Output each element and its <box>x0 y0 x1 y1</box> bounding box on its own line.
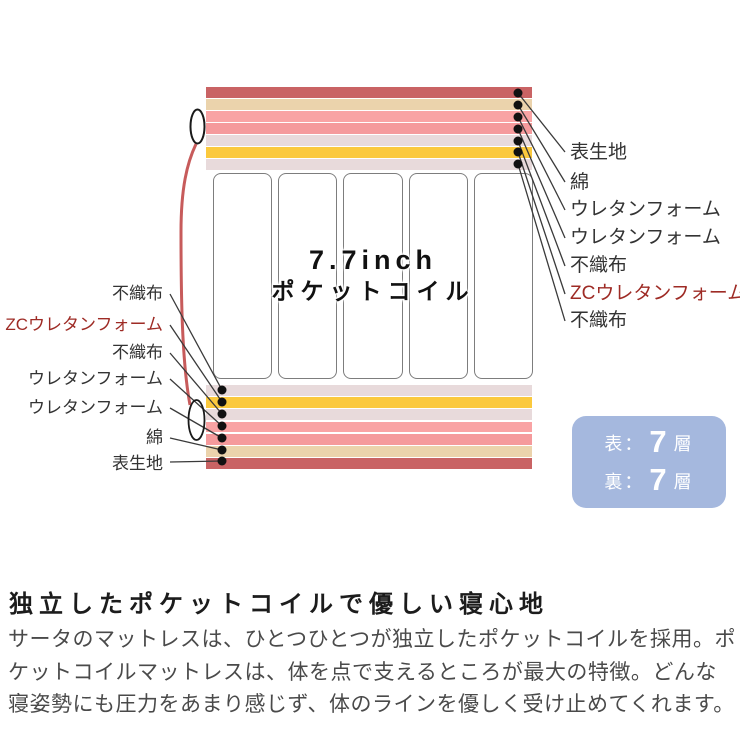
badge-back-row: 裏：7層 <box>604 462 693 500</box>
layer-bottom-surface-fabric <box>206 458 532 469</box>
layer-top-nonwoven-2 <box>206 159 532 170</box>
label-right-nonwoven-1: 不織布 <box>570 255 627 277</box>
coil-height-text: 7.7inch <box>213 246 533 276</box>
label-left-nonwoven-2: 不織布 <box>112 342 163 364</box>
layer-top-urethane-2 <box>206 123 532 134</box>
layer-bottom-nonwoven-2 <box>206 409 532 420</box>
mattress-top-layer-stack <box>206 87 532 170</box>
layer-bottom-urethane-2 <box>206 434 532 445</box>
label-left-urethane-2: ウレタンフォーム <box>28 397 163 419</box>
label-left-surface-fabric: 表生地 <box>112 453 163 475</box>
badge-front-value: 7 <box>649 424 666 460</box>
layer-top-nonwoven-1 <box>206 135 532 146</box>
badge-front-label: 表： <box>604 430 644 456</box>
section-heading: 独立したポケットコイルで優しい寝心地 <box>9 584 549 619</box>
badge-back-value: 7 <box>649 462 666 498</box>
layer-top-zc-urethane <box>206 147 532 158</box>
badge-front-unit: 層 <box>674 430 694 456</box>
stitch-ellipse-top <box>191 110 205 144</box>
label-right-cotton: 綿 <box>570 172 589 194</box>
label-left-zc-urethane: ZCウレタンフォーム <box>5 314 163 336</box>
coil-type-text: ポケットコイル <box>213 279 533 304</box>
coil-spec-text: 7.7inch ポケットコイル <box>213 246 533 304</box>
label-left-nonwoven-1: 不織布 <box>112 283 163 305</box>
label-right-urethane-1: ウレタンフォーム <box>570 199 721 221</box>
stitch-thread-line <box>181 144 196 405</box>
layer-bottom-cotton <box>206 446 532 457</box>
mattress-bottom-layer-stack <box>206 385 532 469</box>
label-right-surface-fabric: 表生地 <box>570 142 627 164</box>
stitch-ellipse-bottom <box>189 400 205 440</box>
badge-front-row: 表：7層 <box>604 424 693 462</box>
layer-top-surface-fabric <box>206 87 532 98</box>
layer-top-cotton <box>206 99 532 110</box>
layer-bottom-zc-urethane <box>206 397 532 408</box>
label-left-cotton: 綿 <box>146 427 163 449</box>
label-right-urethane-2: ウレタンフォーム <box>570 227 721 249</box>
badge-back-unit: 層 <box>674 468 694 494</box>
badge-back-label: 裏： <box>604 468 644 494</box>
label-right-nonwoven-2: 不織布 <box>570 310 627 332</box>
section-body-text: サータのマットレスは、ひとつひとつが独立したポケットコイルを採用。ポケットコイル… <box>8 624 738 722</box>
layer-count-badge: 表：7層 裏：7層 <box>572 416 726 508</box>
layer-bottom-nonwoven-1 <box>206 385 532 396</box>
label-left-urethane-1: ウレタンフォーム <box>28 368 163 390</box>
label-right-zc-urethane: ZCウレタンフォーム <box>570 283 740 305</box>
layer-bottom-urethane-1 <box>206 422 532 433</box>
layer-top-urethane-1 <box>206 111 532 122</box>
